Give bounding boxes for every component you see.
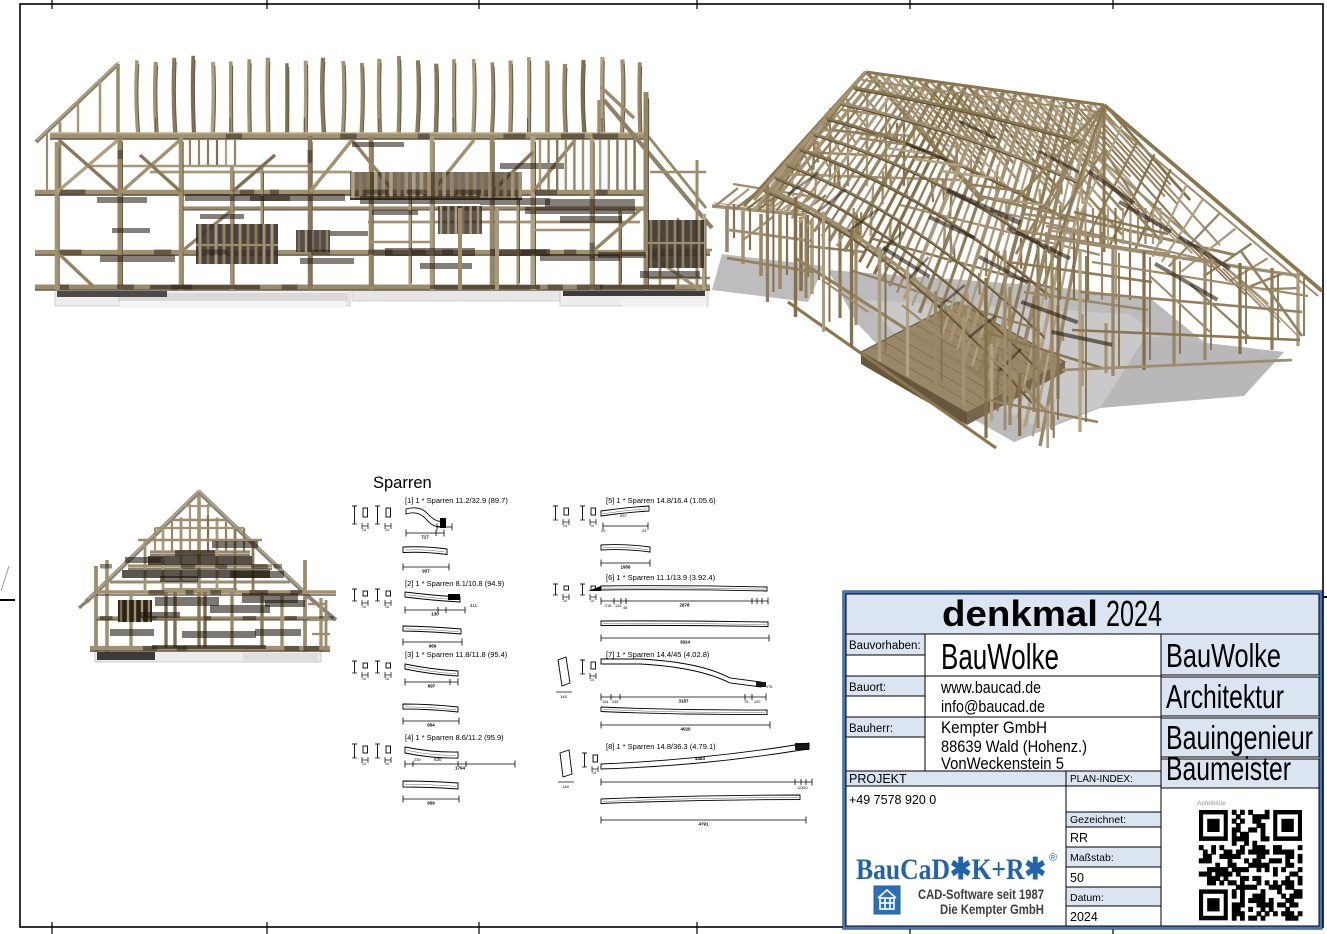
svg-text:14: 14 xyxy=(362,677,366,681)
svg-text:1794: 1794 xyxy=(455,766,466,771)
svg-text:50: 50 xyxy=(1070,871,1084,885)
svg-text:Bauort:: Bauort: xyxy=(849,682,886,694)
svg-text:175: 175 xyxy=(766,685,772,689)
svg-text:2878: 2878 xyxy=(679,603,690,608)
svg-text:215: 215 xyxy=(605,604,611,608)
svg-text:BauWolke: BauWolke xyxy=(941,636,1059,677)
svg-text:20: 20 xyxy=(601,528,606,533)
svg-text:14: 14 xyxy=(590,678,594,682)
svg-text:126: 126 xyxy=(615,604,621,608)
svg-text:245: 245 xyxy=(612,700,618,704)
svg-text:denkmal: denkmal xyxy=(942,593,1098,634)
svg-text:148: 148 xyxy=(562,784,569,789)
svg-text:PLAN-INDEX:: PLAN-INDEX: xyxy=(1070,774,1133,785)
svg-text:14: 14 xyxy=(563,599,567,603)
svg-text:14: 14 xyxy=(590,524,594,528)
svg-text:www.baucad.de: www.baucad.de xyxy=(940,679,1041,697)
svg-text:Architektur: Architektur xyxy=(1166,678,1284,715)
svg-text:Baumeister: Baumeister xyxy=(1166,750,1291,787)
svg-text:[3] 1 * Sparren 11.8/11.8 (95.: [3] 1 * Sparren 11.8/11.8 (95.4) xyxy=(405,650,508,659)
svg-text:3924: 3924 xyxy=(680,640,691,645)
svg-text:RR: RR xyxy=(1070,831,1088,845)
svg-text:12320: 12320 xyxy=(797,786,808,790)
svg-text:14: 14 xyxy=(362,762,366,766)
svg-text:14: 14 xyxy=(563,524,567,528)
svg-text:4791: 4791 xyxy=(698,822,709,827)
svg-text:14: 14 xyxy=(385,762,389,766)
svg-text:3187: 3187 xyxy=(678,699,689,704)
svg-text:959: 959 xyxy=(427,801,435,806)
svg-text:[4] 1 * Sparren 8.6/11.2 (95.9: [4] 1 * Sparren 8.6/11.2 (95.9) xyxy=(405,733,504,742)
svg-text:[8] 1 * Sparren 14.8/36.3 (4.7: [8] 1 * Sparren 14.8/36.3 (4.79.1) xyxy=(606,742,716,751)
svg-text:info@baucad.de: info@baucad.de xyxy=(941,698,1045,716)
svg-text:14: 14 xyxy=(590,599,594,603)
svg-text:VonWeckenstein 5: VonWeckenstein 5 xyxy=(941,755,1064,773)
svg-text:130: 130 xyxy=(431,612,439,617)
svg-text:4483: 4483 xyxy=(695,756,706,761)
svg-text:[2] 1 * Sparren 8.1/10.8 (94.9: [2] 1 * Sparren 8.1/10.8 (94.9) xyxy=(405,579,505,588)
svg-text:Bauherr:: Bauherr: xyxy=(849,723,893,735)
svg-text:[6] 1 * Sparren 11.1/13.9 (3.9: [6] 1 * Sparren 11.1/13.9 (3.92.4) xyxy=(606,573,716,582)
svg-text:Die Kempter GmbH: Die Kempter GmbH xyxy=(940,902,1044,917)
svg-text:14: 14 xyxy=(362,528,366,532)
svg-text:14: 14 xyxy=(592,771,596,775)
svg-text:120: 120 xyxy=(754,700,760,704)
svg-text:937: 937 xyxy=(422,569,430,574)
svg-text:[5] 1 * Sparren 14.8/16.4 (1.0: [5] 1 * Sparren 14.8/16.4 (1.05.6) xyxy=(606,496,716,505)
svg-text:14: 14 xyxy=(362,605,366,609)
svg-text:411: 411 xyxy=(470,603,478,608)
svg-text:937: 937 xyxy=(620,513,627,518)
svg-text:969: 969 xyxy=(429,644,437,649)
svg-text:Maßstab:: Maßstab: xyxy=(1070,852,1114,864)
svg-text:14: 14 xyxy=(385,605,389,609)
svg-text:Bauvorhaben:: Bauvorhaben: xyxy=(849,640,921,652)
svg-text:104: 104 xyxy=(602,700,608,704)
svg-text:BauCaD✱K+R✱: BauCaD✱K+R✱ xyxy=(856,853,1046,886)
svg-text:CAD-Software seit 1987: CAD-Software seit 1987 xyxy=(918,887,1044,902)
svg-text:®: ® xyxy=(1049,852,1057,864)
svg-text:Apfelblüte: Apfelblüte xyxy=(1197,800,1226,807)
svg-text:717: 717 xyxy=(421,535,429,540)
svg-text:148: 148 xyxy=(560,694,567,699)
svg-text:Datum:: Datum: xyxy=(1070,892,1104,904)
svg-text:Kempter GmbH: Kempter GmbH xyxy=(941,719,1047,737)
svg-text:76: 76 xyxy=(744,700,748,704)
svg-text:Gezeichnet:: Gezeichnet: xyxy=(1070,814,1126,826)
svg-text:PROJEKT: PROJEKT xyxy=(849,772,907,786)
svg-text:1956: 1956 xyxy=(620,565,631,570)
svg-text:14: 14 xyxy=(385,528,389,532)
svg-text:BauWolke: BauWolke xyxy=(1166,637,1281,674)
svg-text:[1] 1 * Sparren 11.2/32.9 (89.: [1] 1 * Sparren 11.2/32.9 (89.7) xyxy=(405,496,508,505)
svg-text:Sparren: Sparren xyxy=(373,474,432,492)
svg-text:230: 230 xyxy=(414,757,421,762)
svg-text:4020: 4020 xyxy=(680,727,691,732)
svg-text:88639 Wald (Hohenz.): 88639 Wald (Hohenz.) xyxy=(941,738,1087,756)
svg-text:630: 630 xyxy=(434,757,442,762)
svg-text:2024: 2024 xyxy=(1106,593,1162,634)
svg-text:[7] 1 * Sparren 14.4/45 (4.02.: [7] 1 * Sparren 14.4/45 (4.02.8) xyxy=(606,650,710,659)
svg-text:14: 14 xyxy=(385,677,389,681)
svg-text:45: 45 xyxy=(623,606,627,610)
svg-text:+49 7578 920 0: +49 7578 920 0 xyxy=(849,793,936,807)
svg-text:2024: 2024 xyxy=(1070,910,1098,924)
svg-text:697: 697 xyxy=(428,684,436,689)
svg-text:24: 24 xyxy=(642,528,647,533)
svg-text:954: 954 xyxy=(427,723,435,728)
